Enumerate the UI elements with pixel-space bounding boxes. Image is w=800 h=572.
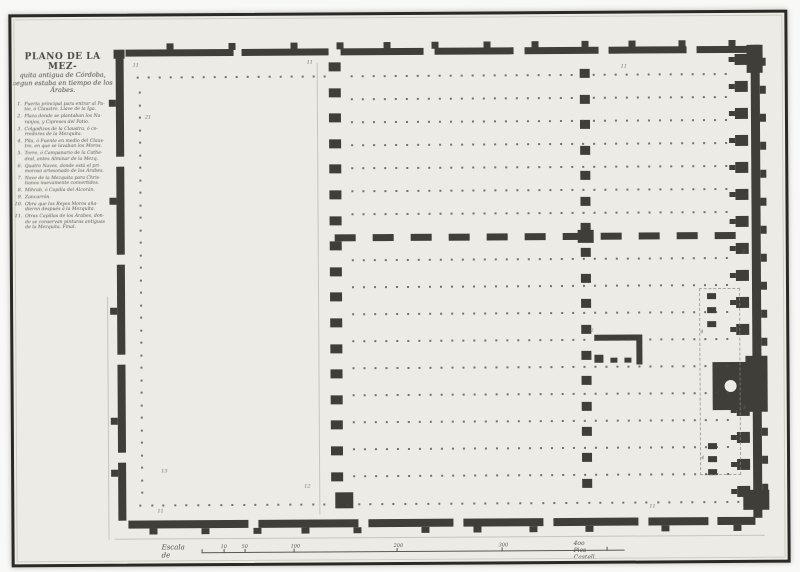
column-dot	[451, 313, 453, 315]
column-dot	[660, 338, 662, 340]
column-dot	[474, 448, 476, 450]
column-dot	[560, 189, 562, 191]
legend-item-number: 1.	[14, 102, 22, 113]
wall-buttress	[473, 527, 481, 533]
column-dot	[170, 76, 172, 78]
column-dot	[351, 75, 353, 77]
column-dot	[650, 419, 652, 421]
column-dot	[463, 394, 465, 396]
column-dot	[474, 394, 476, 396]
column-dot	[505, 166, 507, 168]
column-dot	[693, 311, 695, 313]
column-dot	[617, 474, 619, 476]
column-dot	[351, 167, 353, 169]
column-dot	[254, 504, 256, 506]
column-dot	[615, 120, 617, 122]
pier-courtyard-boundary	[330, 242, 342, 251]
wall-segment-top	[341, 48, 424, 56]
column-dot	[626, 166, 628, 168]
column-dot	[560, 166, 562, 168]
column-dot	[364, 394, 366, 396]
wall-buttress	[353, 527, 361, 533]
column-dot	[583, 258, 585, 260]
column-dot	[473, 286, 475, 288]
column-dot	[561, 312, 563, 314]
column-dot	[594, 366, 596, 368]
column-dot	[462, 367, 464, 369]
column-dot	[396, 213, 398, 215]
column-dot	[681, 188, 683, 190]
column-dot	[639, 447, 641, 449]
column-dot	[494, 74, 496, 76]
column-dot	[430, 475, 432, 477]
column-dot	[417, 144, 419, 146]
chapel-pier	[736, 270, 749, 281]
column-dot	[495, 366, 497, 368]
column-dot	[550, 285, 552, 287]
column-dot	[451, 367, 453, 369]
column-dot	[461, 144, 463, 146]
column-dot	[683, 392, 685, 394]
column-dot	[346, 503, 348, 505]
wall-buttress	[760, 114, 766, 122]
plan-title-line-4: Árabes.	[13, 87, 113, 95]
old-wall-dash	[449, 234, 470, 241]
column-dot	[137, 77, 139, 79]
column-dot	[638, 285, 640, 287]
column-dot	[593, 143, 595, 145]
column-dot	[517, 339, 519, 341]
wall-buttress	[661, 525, 669, 531]
chapel-pier-stub	[729, 165, 735, 170]
column-dot	[561, 339, 563, 341]
column-dot	[406, 121, 408, 123]
column-dot	[551, 420, 553, 422]
column-dot	[139, 117, 141, 119]
column-dot	[626, 143, 628, 145]
column-dot	[441, 421, 443, 423]
plan-numeral: 4	[701, 456, 711, 462]
pier-courtyard-boundary	[331, 472, 343, 481]
column-dot	[352, 213, 354, 215]
column-dot	[430, 421, 432, 423]
column-dot	[406, 98, 408, 100]
column-dot	[507, 420, 509, 422]
column-dot	[395, 98, 397, 100]
column-dot	[440, 367, 442, 369]
column-dot	[660, 365, 662, 367]
column-dot	[364, 475, 366, 477]
column-dot	[628, 393, 630, 395]
column-dot	[373, 98, 375, 100]
wall-buttress	[111, 418, 118, 425]
pier-courtyard-boundary	[329, 114, 341, 123]
column-dot	[395, 167, 397, 169]
column-dot	[716, 419, 718, 421]
column-dot	[571, 120, 573, 122]
column-dot	[516, 120, 518, 122]
column-dot	[140, 292, 142, 294]
column-dot	[406, 144, 408, 146]
column-dot	[551, 447, 553, 449]
column-dot	[671, 257, 673, 259]
scale-end-label: 4oo Pies Castell.	[574, 540, 597, 561]
column-dot	[363, 313, 365, 315]
column-dot	[727, 446, 729, 448]
column-dot	[529, 420, 531, 422]
column-dot	[373, 167, 375, 169]
plan-numeral: 3	[743, 406, 753, 412]
column-dot	[561, 212, 563, 214]
column-dot	[141, 404, 143, 406]
column-dot	[617, 420, 619, 422]
wall-segment-bottom	[128, 520, 248, 529]
column-dot	[395, 121, 397, 123]
wall-buttress	[760, 198, 766, 206]
column-dot	[485, 393, 487, 395]
column-dot	[694, 446, 696, 448]
column-dot	[484, 502, 486, 504]
column-dot	[661, 419, 663, 421]
column-dot	[451, 259, 453, 261]
column-dot	[693, 257, 695, 259]
legend-item-number: 9.	[14, 195, 22, 200]
column-dot	[539, 339, 541, 341]
column-dot	[539, 258, 541, 260]
column-dot	[139, 192, 141, 194]
column-dot	[141, 379, 143, 381]
column-dot	[462, 286, 464, 288]
column-dot	[406, 75, 408, 77]
column-dot	[605, 339, 607, 341]
column-dot	[550, 339, 552, 341]
column-dot	[560, 120, 562, 122]
column-dot	[506, 339, 508, 341]
column-dot	[352, 259, 354, 261]
column-dot	[645, 501, 647, 503]
column-dot	[461, 503, 463, 505]
column-dot	[141, 417, 143, 419]
wall-buttress	[678, 40, 685, 47]
column-dot	[451, 213, 453, 215]
column-dot	[593, 189, 595, 191]
pier-courtyard-boundary	[330, 216, 342, 225]
column-dot	[582, 97, 584, 99]
column-dot	[517, 258, 519, 260]
column-dot	[670, 142, 672, 144]
faint-line	[107, 297, 109, 540]
legend-item-number: 7.	[14, 176, 22, 187]
chapel-pier	[736, 216, 749, 227]
wall-segment-top	[242, 48, 329, 56]
column-dot	[528, 312, 530, 314]
column-dot	[705, 446, 707, 448]
column-dot	[716, 446, 718, 448]
column-dot	[302, 76, 304, 78]
column-dot	[461, 75, 463, 77]
column-dot	[691, 501, 693, 503]
column-dot	[375, 475, 377, 477]
column-dot	[605, 285, 607, 287]
column-dot	[672, 446, 674, 448]
column-dot	[266, 504, 268, 506]
column-dot	[549, 143, 551, 145]
column-dot	[595, 420, 597, 422]
old-wall-dash	[335, 234, 356, 241]
column-dot	[484, 312, 486, 314]
column-dot	[461, 167, 463, 169]
column-dot	[462, 313, 464, 315]
column-dot	[141, 479, 143, 481]
column-dot	[538, 74, 540, 76]
legend-item: 3.Colgadizos de la Claustra, ó co- rredo…	[14, 126, 116, 137]
column-dot	[483, 74, 485, 76]
column-dot	[362, 98, 364, 100]
column-dot	[352, 367, 354, 369]
column-dot	[549, 166, 551, 168]
column-dot	[616, 339, 618, 341]
column-dot	[727, 419, 729, 421]
column-dot	[397, 475, 399, 477]
column-dot	[440, 286, 442, 288]
column-dot	[428, 144, 430, 146]
plan-numeral: 12	[304, 485, 314, 491]
legend-item: 9.Zancarrón.	[14, 195, 116, 201]
column-dot	[648, 119, 650, 121]
wall-buttress	[761, 254, 767, 262]
column-dot	[649, 365, 651, 367]
column-dot	[231, 504, 233, 506]
column-dot	[595, 447, 597, 449]
column-dot	[705, 473, 707, 475]
column-dot	[716, 473, 718, 475]
column-dot	[374, 340, 376, 342]
column-dot	[362, 144, 364, 146]
chapel-pier-stub	[731, 489, 737, 494]
legend-item: 8.Mihrab, ó Capilla del Alcorán.	[14, 188, 116, 194]
column-dot	[622, 502, 624, 504]
column-dot	[550, 212, 552, 214]
column-dot	[451, 340, 453, 342]
column-dot	[538, 166, 540, 168]
old-wall-dash	[525, 233, 546, 240]
column-dot	[505, 97, 507, 99]
column-dot	[604, 120, 606, 122]
legend-item: 4.Pila, ó Fuente en medio del Claus- tro…	[14, 139, 116, 150]
column-dot	[362, 167, 364, 169]
column-dot	[715, 311, 717, 313]
column-dot	[428, 75, 430, 77]
pier-courtyard-boundary	[329, 62, 341, 71]
plan-numeral: 11	[649, 504, 659, 510]
wall-buttress	[201, 528, 209, 534]
legend-item-text: Quatro Naves, donde está el pri- moroso …	[25, 163, 104, 174]
column-dot	[539, 285, 541, 287]
column-dot	[396, 286, 398, 288]
plan-geometry: 111111211312111123434	[0, 0, 798, 2]
wall-segment-left	[117, 365, 126, 453]
column-dot	[530, 502, 532, 504]
column-dot	[385, 286, 387, 288]
column-dot	[363, 259, 365, 261]
legend-item-text: Zancarrón.	[25, 195, 51, 201]
column-dot	[374, 313, 376, 315]
chapel-pier-stub	[729, 111, 735, 116]
column-dot	[617, 447, 619, 449]
column-dot	[716, 392, 718, 394]
column-dot	[418, 340, 420, 342]
column-dot	[714, 501, 716, 503]
column-dot	[576, 502, 578, 504]
legend-item-text: Torre, ó Campanario de la Cathe- dral, a…	[25, 151, 103, 162]
column-dot	[407, 340, 409, 342]
column-dot	[704, 257, 706, 259]
column-dot	[300, 504, 302, 506]
wall-buttress	[733, 525, 741, 531]
column-dot	[506, 312, 508, 314]
column-dot	[516, 74, 518, 76]
column-dot	[529, 393, 531, 395]
column-dot	[714, 142, 716, 144]
column-dot	[528, 212, 530, 214]
legend-item-number: 10.	[14, 202, 22, 213]
column-dot	[407, 213, 409, 215]
column-dot	[650, 392, 652, 394]
column-dot	[417, 167, 419, 169]
column-dot	[518, 393, 520, 395]
wall-segment-bottom	[368, 519, 453, 528]
column-dot	[670, 165, 672, 167]
column-dot	[408, 394, 410, 396]
column-dot	[582, 120, 584, 122]
column-dot	[450, 98, 452, 100]
column-dot	[727, 473, 729, 475]
plan-numeral: 11	[157, 509, 167, 515]
column-dot	[472, 167, 474, 169]
pier-extension-line	[580, 171, 590, 180]
wall-block	[747, 45, 763, 73]
column-dot	[649, 284, 651, 286]
column-dot	[140, 254, 142, 256]
column-dot	[203, 76, 205, 78]
column-dot	[484, 339, 486, 341]
column-dot	[638, 258, 640, 260]
column-dot	[594, 312, 596, 314]
column-dot	[517, 285, 519, 287]
column-dot	[539, 212, 541, 214]
column-dot	[505, 143, 507, 145]
column-dot	[247, 76, 249, 78]
wall-segment-top	[697, 46, 753, 53]
wall-buttress	[728, 40, 735, 47]
column-dot	[704, 365, 706, 367]
wall-buttress	[421, 527, 429, 533]
column-dot	[485, 474, 487, 476]
column-dot	[648, 96, 650, 98]
column-dot	[506, 366, 508, 368]
wall-buttress	[762, 456, 768, 464]
chapel-pier-stub	[730, 246, 736, 251]
pier-courtyard-boundary	[330, 293, 342, 302]
column-dot	[527, 120, 529, 122]
column-dot	[726, 501, 728, 503]
column-dot	[671, 311, 673, 313]
wall-segment-bottom	[553, 518, 638, 527]
wall-buttress	[760, 170, 766, 178]
column-dot	[540, 420, 542, 422]
column-dot	[363, 213, 365, 215]
column-dot	[560, 97, 562, 99]
chapel-pier	[735, 135, 748, 146]
legend-item-text: Obra que los Reyes Moros aña- dieron des…	[25, 202, 98, 213]
column-dot	[386, 448, 388, 450]
column-dot	[572, 339, 574, 341]
column-dot	[450, 144, 452, 146]
column-dot	[593, 97, 595, 99]
column-dot	[140, 329, 142, 331]
column-dot	[661, 392, 663, 394]
column-dot	[463, 448, 465, 450]
column-dot	[139, 204, 141, 206]
wall-block	[114, 50, 125, 59]
pier-extension-line	[581, 274, 591, 283]
column-dot	[277, 504, 279, 506]
column-dot	[417, 190, 419, 192]
column-dot	[428, 167, 430, 169]
column-dot	[289, 504, 291, 506]
column-dot	[715, 338, 717, 340]
column-dot	[461, 98, 463, 100]
column-dot	[583, 312, 585, 314]
column-dot	[648, 188, 650, 190]
column-dot	[549, 120, 551, 122]
column-dot	[694, 392, 696, 394]
column-dot	[517, 312, 519, 314]
column-dot	[439, 144, 441, 146]
column-dot	[429, 367, 431, 369]
column-dot	[649, 338, 651, 340]
column-dot	[538, 97, 540, 99]
column-dot	[571, 189, 573, 191]
column-dot	[483, 189, 485, 191]
pier-courtyard-boundary	[331, 421, 343, 430]
column-dot	[472, 98, 474, 100]
column-dot	[599, 502, 601, 504]
column-dot	[351, 98, 353, 100]
scale-tick-label: 10	[221, 544, 227, 550]
column-dot	[461, 121, 463, 123]
column-dot	[704, 211, 706, 213]
column-dot	[672, 392, 674, 394]
column-dot	[715, 257, 717, 259]
chapel-pier-stub	[729, 138, 735, 143]
column-dot	[324, 75, 326, 77]
column-dot	[584, 474, 586, 476]
column-dot	[726, 257, 728, 259]
column-dot	[616, 366, 618, 368]
pier-courtyard-boundary	[330, 370, 342, 379]
column-dot	[649, 211, 651, 213]
column-dot	[473, 259, 475, 261]
column-dot	[668, 501, 670, 503]
plan-numeral: 13	[161, 469, 171, 475]
column-dot	[726, 284, 728, 286]
column-dot	[417, 98, 419, 100]
column-dot	[573, 474, 575, 476]
column-dot	[714, 188, 716, 190]
column-dot	[627, 258, 629, 260]
column-dot	[450, 503, 452, 505]
